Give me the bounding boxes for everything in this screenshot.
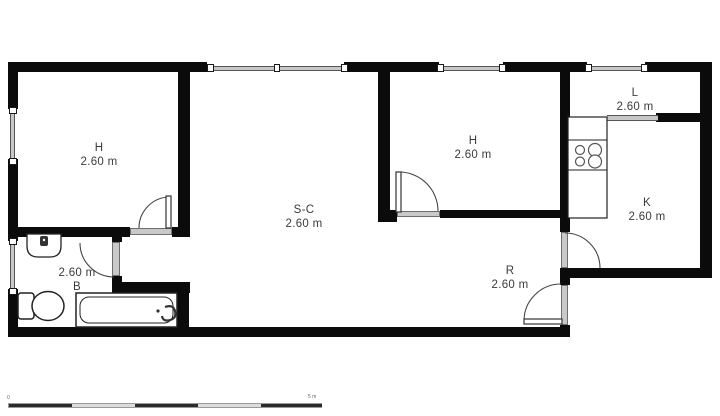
room-label-hall: L 2.60 m [590,86,680,114]
scale-bar [8,403,322,408]
room-name: R [465,264,555,278]
room-label-bedroom-left: H 2.60 m [54,141,144,169]
room-size: 2.60 m [54,155,144,169]
door-leaf [524,319,562,324]
room-name: H [428,134,518,148]
sink [27,234,61,257]
door-arc [565,233,600,268]
room-size: 2.60 m [259,217,349,231]
room-size: 2.60 m [428,148,518,162]
room-size: 2.60 m [602,210,692,224]
room-size: 2.60 m [465,278,555,292]
room-label-kitchen: K 2.60 m [602,196,692,224]
scale-bar-segment [135,404,198,407]
room-label-entry: R 2.60 m [465,264,555,292]
room-label-bathroom: 2.60 m B [32,266,122,294]
room-label-bedroom-right: H 2.60 m [428,134,518,162]
scale-bar-segment [261,404,322,407]
toilet [18,292,64,321]
room-name: H [54,141,144,155]
door-leaf [396,172,401,212]
room-name: K [602,196,692,210]
bathtub [76,293,177,327]
door-arc [139,197,170,228]
door-leaf [166,196,171,228]
room-name: B [32,280,122,294]
room-size: 2.60 m [32,266,122,280]
room-name: S-C [259,203,349,217]
scale-end-label: 5 m [308,395,316,400]
room-name: L [590,86,680,100]
room-size: 2.60 m [590,100,680,114]
tub-drain [156,309,159,312]
door-arc [399,172,438,211]
scale-bar-segment [9,404,72,407]
floor-plan: H 2.60 m S-C 2.60 m H 2.60 m L 2.60 m K … [0,0,720,416]
scale-start-label: 0 [7,396,10,401]
room-label-living-room: S-C 2.60 m [259,203,349,231]
